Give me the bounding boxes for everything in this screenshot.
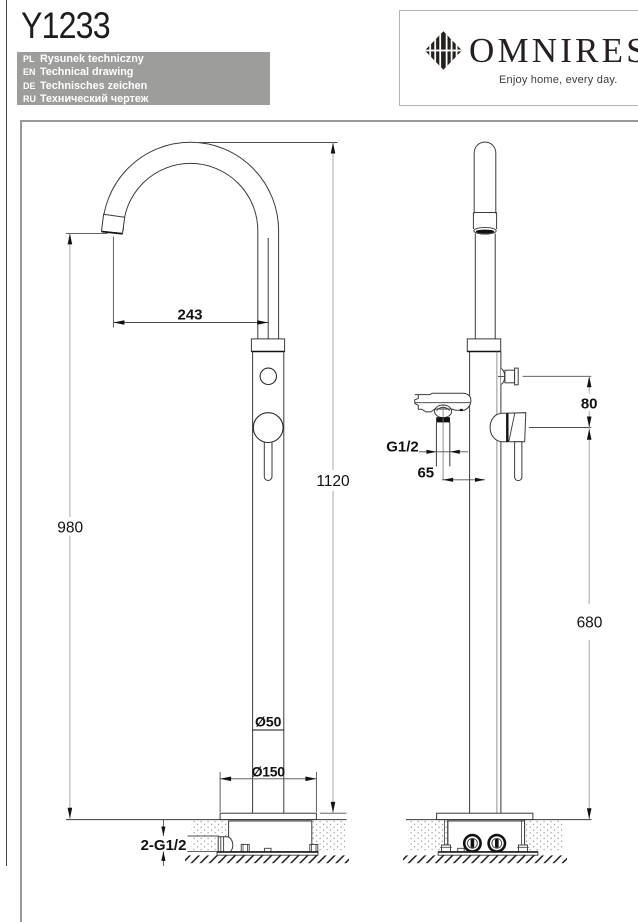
svg-text:980: 980	[57, 519, 83, 536]
svg-text:65: 65	[417, 465, 434, 482]
svg-text:Ø50: Ø50	[255, 714, 282, 730]
svg-text:680: 680	[577, 615, 603, 632]
svg-text:243: 243	[177, 307, 202, 324]
svg-text:Ø150: Ø150	[252, 764, 286, 780]
svg-text:1120: 1120	[316, 473, 350, 490]
svg-text:80: 80	[581, 395, 598, 412]
svg-text:2-G1/2: 2-G1/2	[141, 837, 187, 854]
svg-text:G1/2: G1/2	[386, 439, 419, 456]
